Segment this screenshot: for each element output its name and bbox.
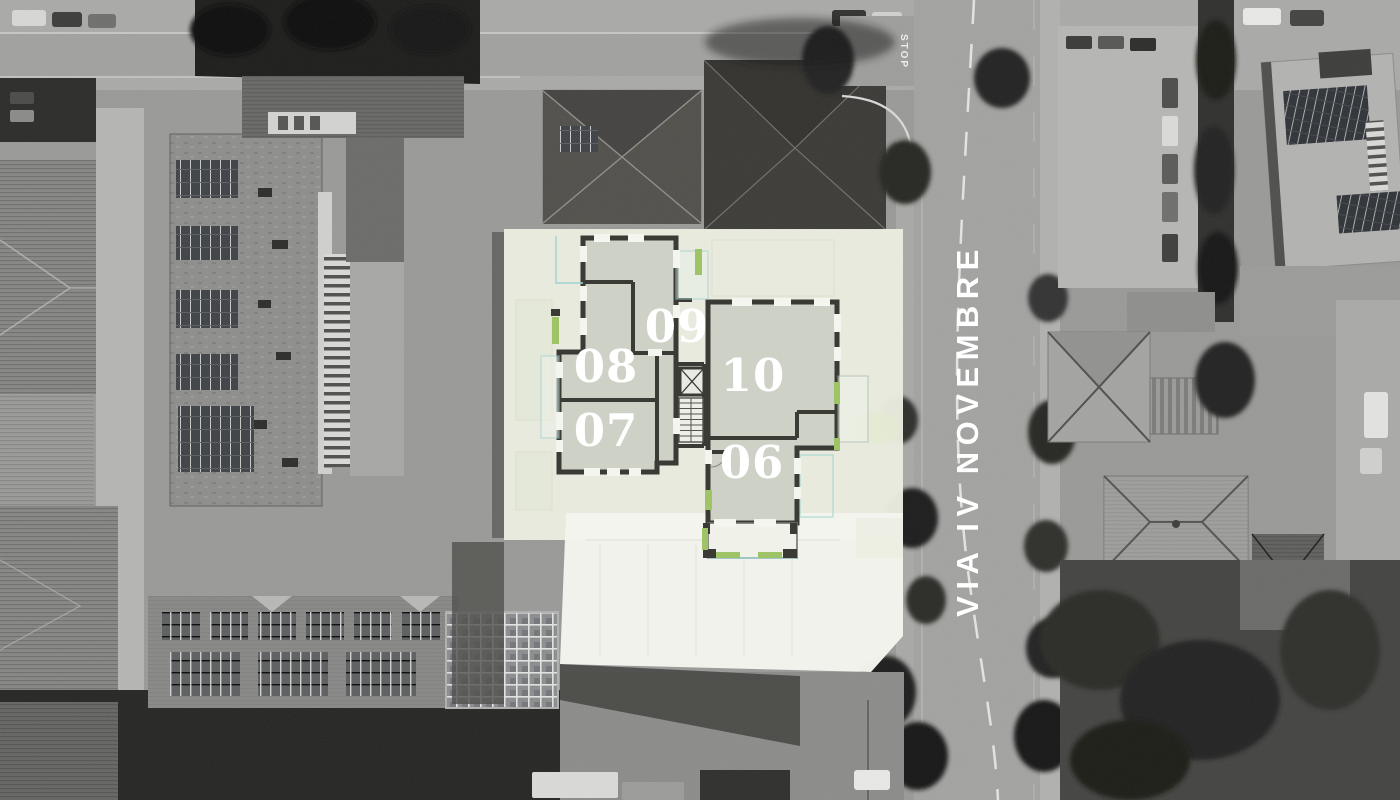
unit-label-07[interactable]: 07: [574, 404, 639, 457]
floor-plan-overlay: 09 08 10 07 06: [504, 229, 903, 672]
scene-canvas: 09 08 10 07 06 VIA IV NOVEMBRE STOP: [0, 0, 1400, 800]
balcony-east: [838, 376, 868, 442]
entrance-canopy: [676, 251, 708, 299]
unit-label-10[interactable]: 10: [721, 349, 786, 402]
unit-label-06[interactable]: 06: [720, 436, 785, 489]
planter-wall-stub: [551, 309, 560, 316]
aerial-site-plan-view: 09 08 10 07 06 VIA IV NOVEMBRE STOP: [0, 0, 1400, 800]
stop-road-marking: STOP: [898, 34, 909, 69]
unit-label-09[interactable]: 09: [645, 300, 710, 353]
paving-patch: [856, 518, 903, 558]
unit-label-08[interactable]: 08: [574, 340, 639, 393]
street-name-label: VIA IV NOVEMBRE: [950, 243, 985, 617]
